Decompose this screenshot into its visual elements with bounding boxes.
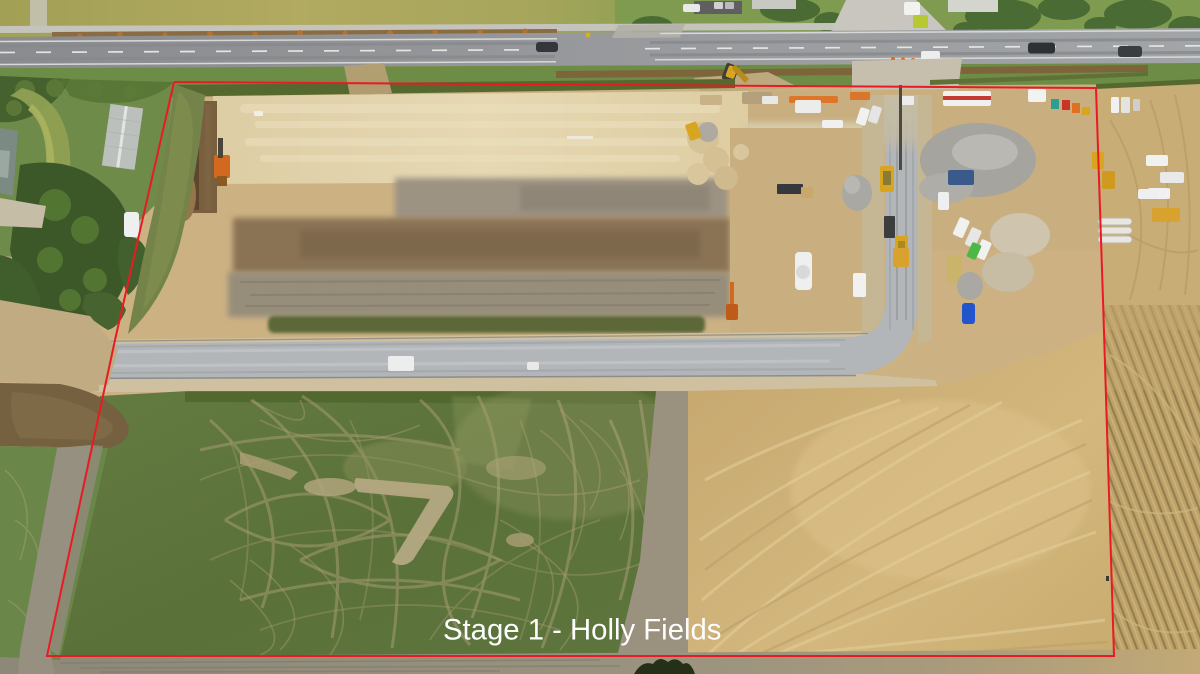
svg-text:Stage 1 - Holly Fields: Stage 1 - Holly Fields	[443, 614, 721, 647]
